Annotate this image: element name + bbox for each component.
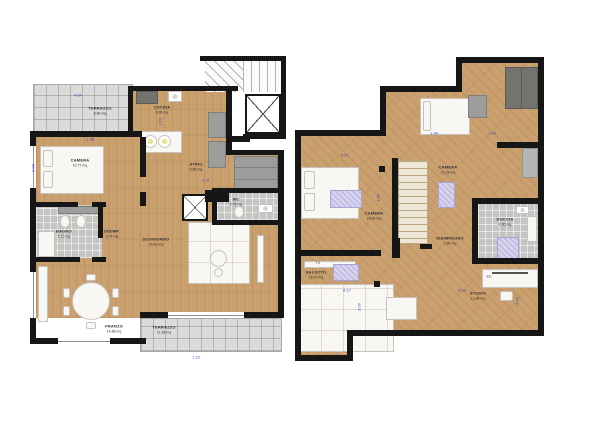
room-label-disimpegno-1: DISIMP. 3.74 mq bbox=[104, 230, 120, 239]
room-label-terrazzo-lower: TERRAZZO 11.38 mq bbox=[152, 326, 175, 335]
room-label-atrio: ATRIO 5.80 mq bbox=[189, 163, 202, 172]
column bbox=[379, 166, 385, 172]
wall bbox=[30, 257, 80, 262]
chair bbox=[112, 306, 119, 316]
terrace-floor-lower bbox=[140, 318, 282, 352]
kitchen-sink bbox=[168, 91, 182, 102]
chair bbox=[112, 288, 119, 298]
room-label-wc: WC 2.05 mq bbox=[230, 198, 243, 207]
cooktop-burner bbox=[158, 135, 171, 148]
background-patch bbox=[299, 63, 386, 130]
kitchen-counter bbox=[208, 141, 226, 168]
wall bbox=[98, 202, 103, 238]
dining-table bbox=[72, 282, 110, 320]
dimension-label: 3.08 bbox=[31, 164, 36, 172]
room-label-studio: STUDIO 13.85 mq bbox=[470, 292, 486, 301]
kitchen-counter bbox=[208, 112, 226, 138]
dimension-label: 4.07 bbox=[341, 153, 349, 158]
tv-label: TV bbox=[316, 261, 320, 265]
bath-mat bbox=[497, 237, 519, 259]
wall bbox=[295, 130, 386, 136]
chair bbox=[63, 288, 70, 298]
bathroom-counter bbox=[58, 206, 102, 214]
wardrobe bbox=[505, 67, 538, 109]
pillow bbox=[304, 193, 315, 211]
internal-stairs bbox=[398, 160, 428, 244]
wall bbox=[380, 86, 462, 92]
room-label-doccia: DOCCIA 4.86 mq bbox=[497, 218, 514, 227]
wall bbox=[472, 198, 478, 264]
room-label-camera-1: CAMERA 10.77 mq bbox=[71, 159, 90, 168]
elevator bbox=[245, 94, 281, 134]
window bbox=[168, 312, 244, 318]
dimension-label: 3.09 bbox=[458, 288, 466, 293]
dimension-label: 4.04 bbox=[74, 93, 82, 98]
window bbox=[30, 272, 36, 318]
floor-plan-canvas: TERRAZZO 8.80 mq CUCINA 8.86 mq CAMERA 1… bbox=[0, 0, 600, 424]
coffee-table bbox=[210, 250, 227, 267]
wall bbox=[347, 330, 544, 336]
side-table bbox=[214, 268, 223, 277]
window bbox=[58, 338, 110, 344]
wall bbox=[392, 158, 398, 244]
wall bbox=[299, 250, 381, 256]
rug bbox=[330, 190, 362, 208]
wall bbox=[128, 86, 238, 91]
wall bbox=[30, 202, 78, 207]
column bbox=[374, 281, 380, 287]
table bbox=[386, 297, 417, 320]
room-label-camera-18: CAMERA 18.36 mq bbox=[365, 212, 384, 221]
room-label-pranzo: PRANZO 14.85 mq bbox=[105, 325, 123, 334]
closet bbox=[522, 148, 538, 178]
room-label-bagno: BAGNO 4.13 mq bbox=[56, 230, 72, 239]
sink bbox=[516, 206, 529, 214]
wc-sink bbox=[258, 204, 273, 213]
room-label-disimpegno-2: DISIMPEGNO 5.86 mq bbox=[436, 237, 464, 246]
dimension-label: 3.05 bbox=[376, 194, 381, 202]
wall bbox=[420, 244, 432, 249]
wall bbox=[295, 130, 301, 361]
wardrobe bbox=[234, 156, 278, 192]
wall bbox=[205, 190, 229, 202]
dimension-label: 1.16 bbox=[192, 355, 200, 360]
rug bbox=[438, 182, 455, 208]
pillow bbox=[423, 101, 431, 131]
wall bbox=[475, 198, 538, 204]
wall bbox=[456, 57, 544, 63]
terrace-floor-upper bbox=[33, 84, 133, 133]
wall bbox=[278, 150, 284, 318]
chair bbox=[63, 306, 70, 316]
wall bbox=[497, 142, 538, 148]
pillow bbox=[43, 150, 53, 167]
dresser bbox=[468, 95, 487, 118]
fridge bbox=[136, 91, 158, 104]
wall bbox=[295, 355, 353, 361]
dimension-label: 3.06 bbox=[357, 303, 362, 311]
room-label-terrazzo-upper: TERRAZZO 8.80 mq bbox=[88, 107, 111, 116]
wall bbox=[140, 137, 146, 177]
shower-tray bbox=[527, 216, 537, 242]
wall bbox=[226, 150, 284, 155]
rug bbox=[333, 264, 359, 281]
stairs bbox=[243, 61, 281, 92]
dimension-label: 1.60 bbox=[488, 131, 496, 136]
dimension-label: 6.17 bbox=[343, 288, 351, 293]
wall bbox=[380, 86, 386, 136]
dimension-label: 1.91 bbox=[202, 178, 210, 183]
room-label-cucina: CUCINA 8.86 mq bbox=[154, 106, 171, 115]
dimension-label: 1.44 bbox=[430, 131, 438, 136]
wall bbox=[392, 238, 400, 258]
wc-toilet bbox=[234, 206, 244, 218]
pillow bbox=[43, 171, 53, 188]
tv-bench bbox=[257, 235, 264, 283]
wall bbox=[128, 86, 133, 133]
wall bbox=[212, 220, 282, 225]
room-label-soggiorno: SOGGIORNO 20.60 mq bbox=[143, 238, 170, 247]
wall bbox=[538, 57, 544, 336]
pc-label: PC bbox=[487, 275, 492, 279]
wall bbox=[140, 192, 146, 206]
chair bbox=[86, 274, 96, 281]
sideboard bbox=[38, 266, 48, 322]
pillow bbox=[304, 171, 315, 189]
wall bbox=[281, 56, 286, 139]
bathtub bbox=[38, 231, 55, 257]
monitor bbox=[492, 272, 528, 274]
wall bbox=[226, 136, 250, 142]
wall bbox=[226, 91, 232, 155]
wall bbox=[472, 258, 544, 264]
bidet bbox=[76, 215, 86, 228]
room-label-salotto: SALOTTO 16.70 mq bbox=[306, 271, 326, 280]
room-label-camera-21: CAMERA 21.28 mq bbox=[439, 166, 458, 175]
chair bbox=[86, 322, 96, 329]
wall bbox=[92, 257, 106, 262]
dimension-label: 1.70 bbox=[158, 118, 163, 126]
desk-chair bbox=[500, 291, 513, 301]
dimension-label: 2.45 bbox=[515, 297, 520, 305]
toilet bbox=[60, 215, 70, 228]
wall bbox=[200, 56, 286, 61]
dimension-label: 1.98 bbox=[86, 137, 94, 142]
